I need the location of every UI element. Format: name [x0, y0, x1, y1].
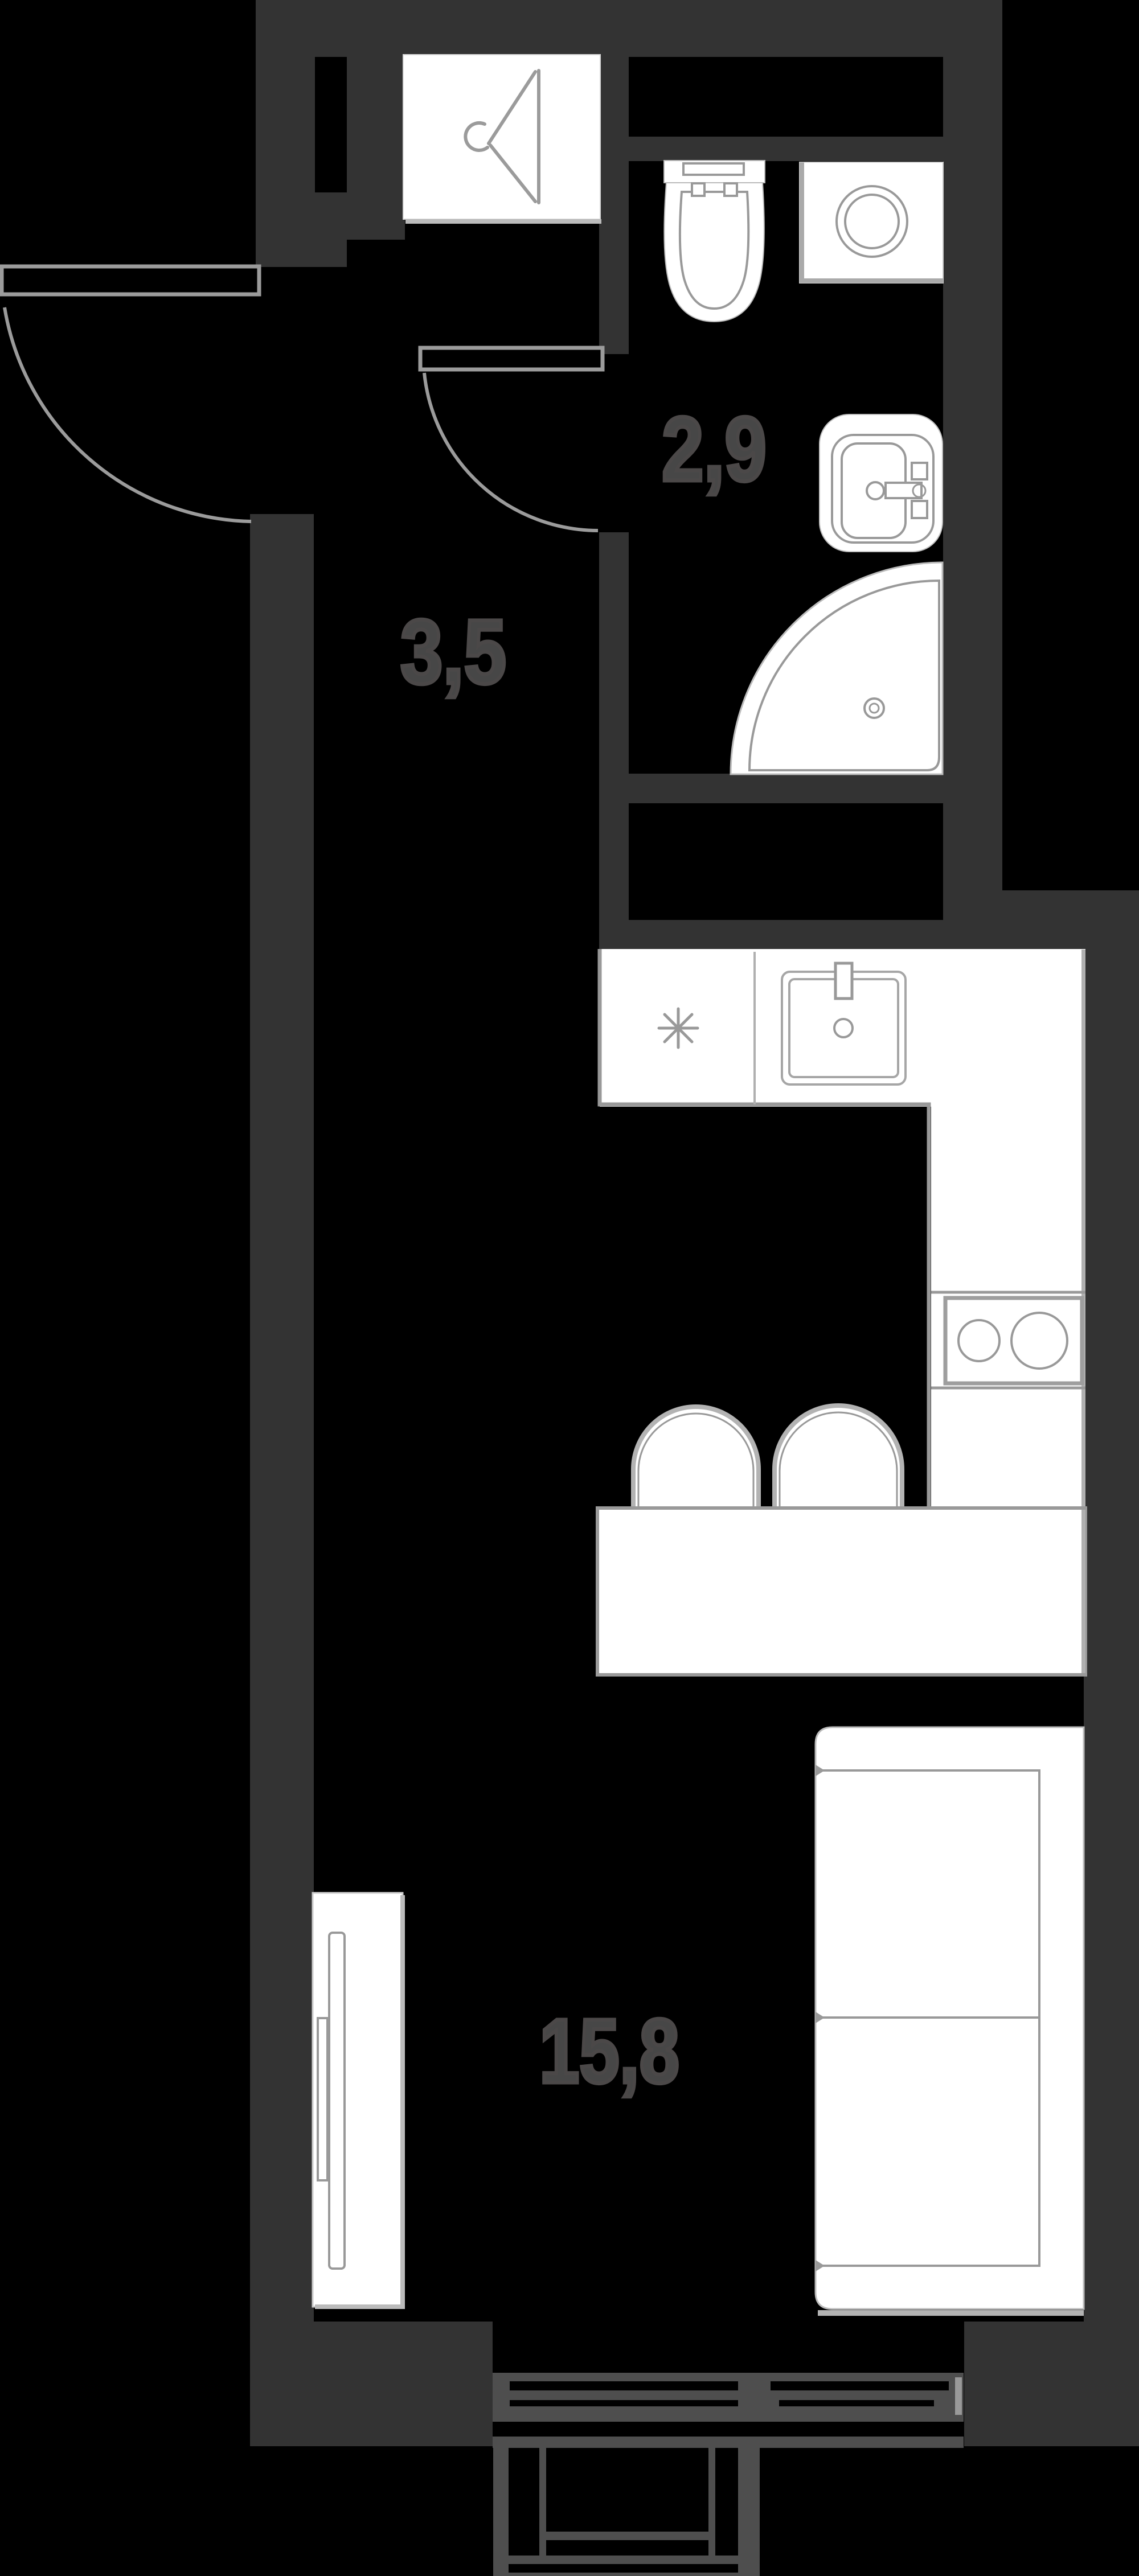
svg-text:2,9: 2,9: [662, 398, 767, 500]
svg-text:3,5: 3,5: [400, 601, 506, 702]
svg-text:15,8: 15,8: [539, 2000, 679, 2102]
